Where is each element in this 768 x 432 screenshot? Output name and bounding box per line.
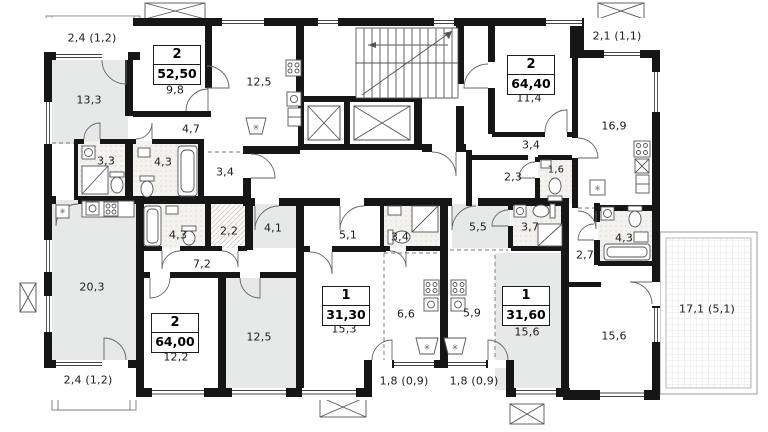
room-area-label: 9,8 — [166, 84, 184, 97]
vent-shaft-icon — [20, 283, 36, 312]
room-area-label: 15,6 — [601, 330, 626, 343]
room-area-label: 4,3 — [615, 232, 633, 245]
room-area-label: 1,6 — [548, 165, 565, 176]
sink-icon — [86, 202, 99, 215]
shower-icon — [538, 224, 562, 246]
svg-text:✳: ✳ — [253, 123, 260, 132]
room-area-label: 5,1 — [339, 229, 357, 242]
bathtub-icon — [144, 206, 161, 246]
toilet-icon — [110, 172, 124, 193]
room-area-label: 2,7 — [576, 249, 594, 262]
apartment-area: 31,30 — [323, 306, 369, 325]
toilet-icon — [628, 206, 642, 227]
floor-plan-drawing: ✳ ✳ ✳ ✳ ✳ — [0, 0, 768, 432]
kitchen-counter — [288, 108, 301, 126]
apartment-info-31-30: 1 31,30 — [322, 286, 370, 326]
room-area-label: 6,6 — [397, 308, 415, 321]
room-area-label: 20,3 — [79, 281, 104, 294]
room-area-label: 5,9 — [463, 307, 481, 320]
apartment-area: 64,00 — [152, 333, 198, 352]
fridge-icon: ✳ — [590, 180, 605, 195]
room-area-label: 15,6 — [514, 326, 539, 339]
stove-icon — [424, 280, 439, 295]
room-area-label: 12,5 — [246, 331, 271, 344]
apartment-info-52-50: 2 52,50 — [153, 45, 201, 85]
room-area-label: 3,3 — [97, 155, 115, 168]
bathtub-icon — [604, 244, 650, 260]
room-area-label: 4,3 — [154, 156, 172, 169]
room-area-label: 16,9 — [601, 120, 626, 133]
room-area-label: 4,3 — [169, 229, 187, 242]
elevator-icon — [304, 102, 344, 144]
fridge-icon: ✳ — [416, 338, 438, 354]
room-area-label: 5,5 — [469, 221, 487, 234]
apartment-rooms-count: 2 — [508, 56, 554, 75]
balcony-area-label: 2,1 (1,1) — [593, 30, 642, 43]
apartment-rooms-count: 1 — [503, 287, 549, 306]
room-area-label: 7,2 — [193, 258, 211, 271]
room-area-label: 3,4 — [391, 231, 409, 244]
sink-icon — [166, 206, 178, 214]
room-area-label: 3,4 — [522, 139, 540, 152]
washing-machine-icon — [601, 207, 614, 220]
svg-text:✳: ✳ — [594, 184, 601, 193]
apartment-info-64-00: 2 64,00 — [151, 313, 199, 353]
fridge-icon: ✳ — [246, 118, 266, 134]
apartment-info-64-40: 2 64,40 — [507, 55, 555, 95]
sink-icon — [634, 232, 648, 242]
balcony-area-label: 1,8 (0,9) — [450, 375, 499, 388]
sink-icon — [138, 148, 150, 157]
apartment-rooms-count: 2 — [152, 314, 198, 333]
sink-icon — [424, 298, 438, 311]
room-area-label: 3,7 — [521, 221, 539, 234]
fridge-icon: ✳ — [56, 205, 69, 218]
vent-shaft-icon — [510, 404, 544, 424]
vent-shaft-icon — [598, 3, 644, 19]
sink-icon — [635, 159, 649, 173]
toilet-icon — [548, 178, 562, 201]
terrace-area-label: 17,1 (5,1) — [679, 303, 735, 316]
apartment-rooms-count: 2 — [154, 46, 200, 65]
room-area-label: 2,2 — [220, 225, 238, 238]
stove-icon — [451, 280, 466, 295]
shower-icon — [82, 166, 108, 194]
svg-text:✳: ✳ — [424, 343, 431, 352]
sink-icon — [287, 92, 301, 106]
bathtub-icon — [178, 146, 197, 196]
toilet-icon — [533, 204, 555, 218]
balcony-area-label: 2,4 (1,2) — [68, 32, 117, 45]
room-area-label: 4,7 — [182, 123, 200, 136]
kitchen-counter — [636, 175, 649, 193]
floor-plan: ✳ ✳ ✳ ✳ ✳ 2 52,50 2 64,40 2 64,00 1 31,3… — [0, 0, 768, 432]
room-area-label: 4,1 — [264, 222, 282, 235]
vent-shaft-icon — [145, 3, 205, 19]
svg-text:✳: ✳ — [452, 343, 459, 352]
sink-icon — [388, 206, 401, 215]
room-area-label: 3,4 — [216, 166, 234, 179]
room-area-label: 13,3 — [76, 94, 101, 107]
apartment-area: 52,50 — [154, 65, 200, 84]
washing-machine-icon — [514, 205, 526, 217]
toilet-icon — [140, 176, 154, 197]
balcony-area-label: 2,4 (1,2) — [64, 374, 113, 387]
shower-icon — [412, 206, 438, 232]
fridge-icon: ✳ — [444, 338, 466, 354]
apartment-info-31-60: 1 31,60 — [502, 286, 550, 326]
stairs-icon — [356, 28, 458, 98]
room-area-label: 12,5 — [246, 76, 271, 89]
apartment-area: 31,60 — [503, 306, 549, 325]
apartment-rooms-count: 1 — [323, 287, 369, 306]
stove-icon — [634, 141, 650, 157]
svg-text:✳: ✳ — [59, 207, 66, 216]
stove-icon — [104, 202, 118, 216]
balcony-area-label: 1,8 (0,9) — [380, 375, 429, 388]
washing-machine-icon — [82, 146, 95, 159]
apartment-area: 64,40 — [508, 75, 554, 94]
elevator-icon — [350, 102, 414, 144]
room-area-label: 2,3 — [504, 171, 522, 184]
stove-icon — [286, 60, 301, 76]
